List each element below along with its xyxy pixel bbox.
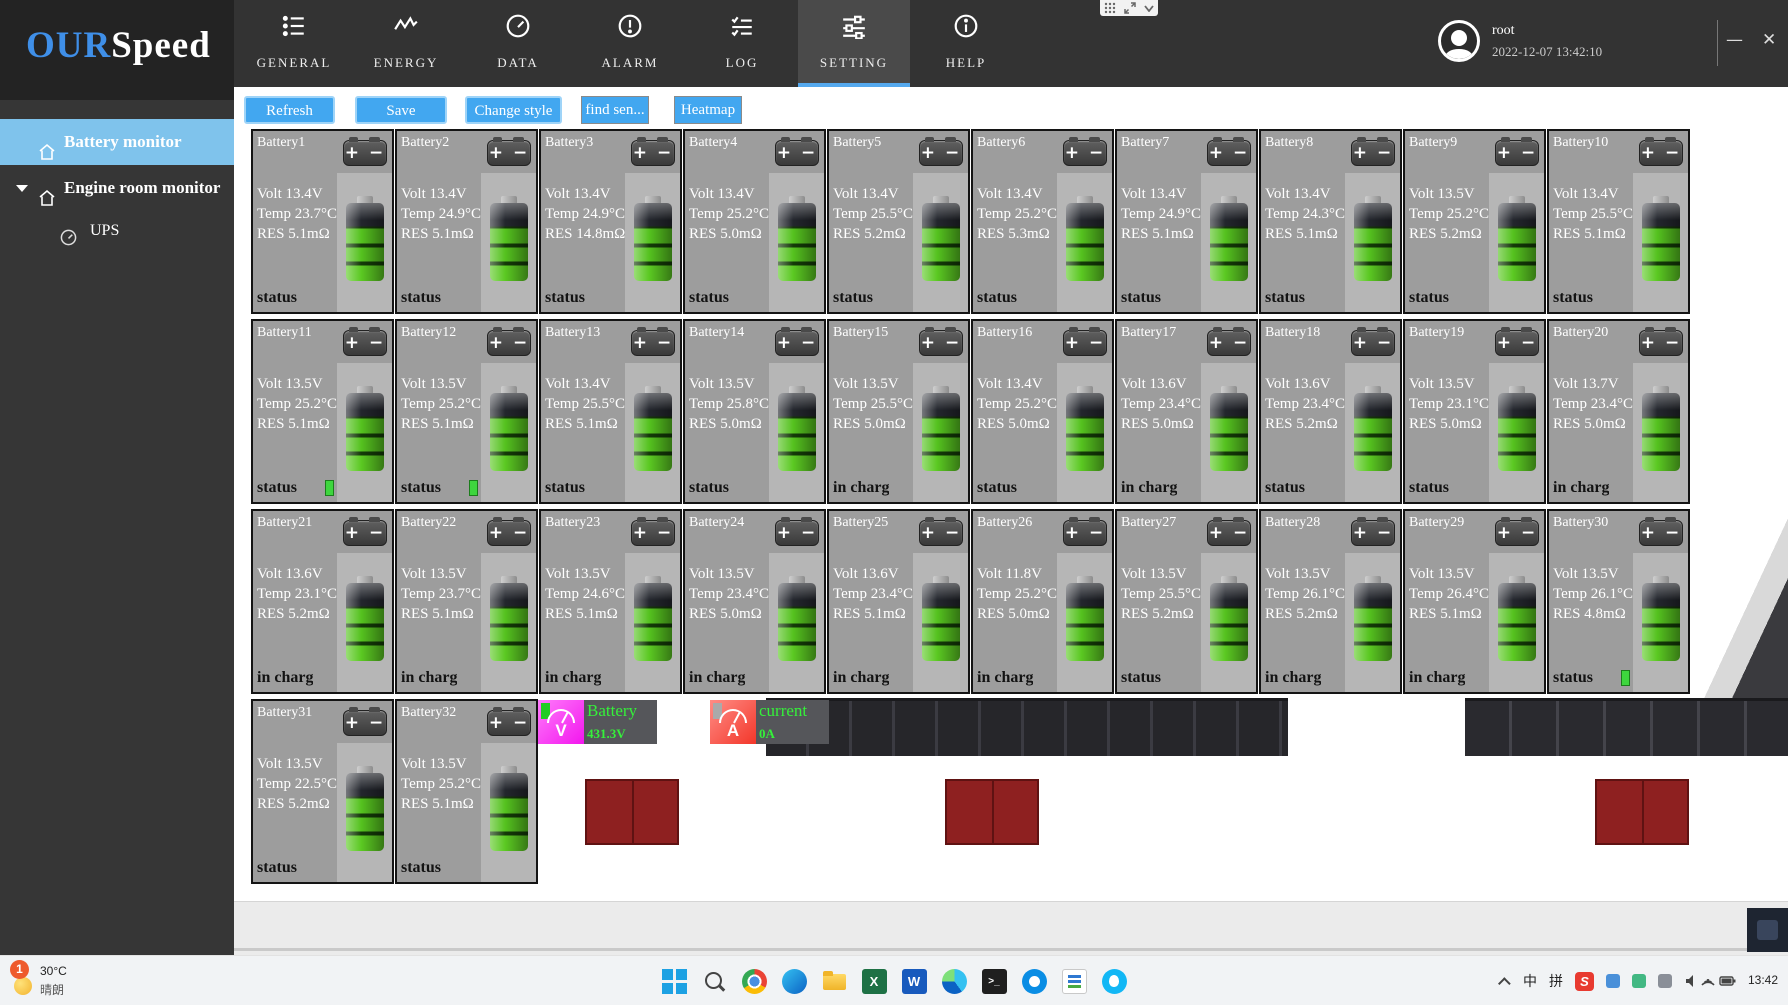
battery-card[interactable]: Battery31 Volt 13.5V Temp 22.5°C RES 5.2… (251, 699, 394, 884)
battery-card[interactable]: Battery28 Volt 13.5V Temp 26.1°C RES 5.2… (1259, 509, 1402, 694)
browser-icon[interactable] (942, 969, 967, 994)
system-tray: 中 拼 S 13:42 (1502, 956, 1778, 1006)
battery-status: status (257, 859, 297, 877)
sidebar-item-ups[interactable]: UPS (0, 211, 234, 251)
battery-name: Battery15 (833, 325, 888, 341)
battery-status: in charg (401, 669, 457, 687)
battery-card[interactable]: Battery17 Volt 13.6V Temp 23.4°C RES 5.0… (1115, 319, 1258, 504)
terminal-icon[interactable]: >_ (982, 969, 1007, 994)
battery-volt: Volt 13.5V (1409, 564, 1489, 584)
battery-level-icon (1066, 393, 1104, 471)
battery-level-icon (1498, 393, 1536, 471)
battery-status: in charg (1265, 669, 1321, 687)
battery-volt: Volt 13.4V (257, 184, 337, 204)
battery-temp: Temp 23.4°C (1121, 394, 1201, 414)
messenger-icon[interactable] (1102, 969, 1127, 994)
battery-volt: Volt 13.4V (1553, 184, 1633, 204)
heatmap-field[interactable]: Heatmap (674, 96, 742, 124)
battery-name: Battery32 (401, 705, 456, 721)
folder-icon[interactable] (822, 969, 847, 994)
ammeter-icon: A (710, 700, 756, 744)
car-battery-icon (1639, 140, 1683, 166)
battery-temp: Temp 23.1°C (1409, 394, 1489, 414)
battery-values: Volt 13.5V Temp 25.2°C RES 5.2mΩ (1409, 184, 1489, 244)
sidebar-item-label: Engine room monitor (64, 178, 220, 197)
tab-general[interactable]: GENERAL (238, 0, 350, 87)
battery-volt: Volt 13.4V (689, 184, 769, 204)
battery-level-column (1633, 553, 1688, 692)
battery-volt: Volt 13.5V (257, 754, 337, 774)
battery-temp: Temp 24.9°C (1121, 204, 1201, 224)
battery-temp: Temp 25.2°C (977, 204, 1057, 224)
battery-values: Volt 11.8V Temp 25.2°C RES 5.0mΩ (977, 564, 1057, 624)
battery-name: Battery3 (545, 135, 593, 151)
meter-label: Battery (587, 701, 637, 721)
tab-label: LOG (686, 55, 798, 71)
tab-label: GENERAL (238, 55, 350, 71)
battery-values: Volt 13.4V Temp 24.3°C RES 5.1mΩ (1265, 184, 1345, 244)
ime-mode[interactable]: 拼 (1549, 971, 1563, 991)
battery-card[interactable]: Battery16 Volt 13.4V Temp 25.2°C RES 5.0… (971, 319, 1114, 504)
docs-icon[interactable] (1062, 969, 1087, 994)
battery-res: RES 5.1mΩ (1265, 224, 1345, 244)
battery-card[interactable]: Battery13 Volt 13.4V Temp 25.5°C RES 5.1… (539, 319, 682, 504)
battery-values: Volt 13.5V Temp 24.6°C RES 5.1mΩ (545, 564, 625, 624)
meter-letter: V (538, 721, 584, 741)
battery-volt: Volt 13.4V (1265, 184, 1345, 204)
battery-temp: Temp 24.9°C (401, 204, 481, 224)
battery-card[interactable]: Battery19 Volt 13.5V Temp 23.1°C RES 5.0… (1403, 319, 1546, 504)
battery-res: RES 5.1mΩ (1553, 224, 1633, 244)
battery-card[interactable]: Battery11 Volt 13.5V Temp 25.2°C RES 5.1… (251, 319, 394, 504)
car-battery-icon (1495, 140, 1539, 166)
battery-temp: Temp 25.5°C (833, 204, 913, 224)
battery-level-icon (1642, 583, 1680, 661)
battery-card[interactable]: Battery1 Volt 13.4V Temp 23.7°C RES 5.1m… (251, 129, 394, 314)
battery-temp: Temp 25.2°C (401, 394, 481, 414)
sidebar-item-label: Battery monitor (64, 132, 182, 151)
battery-temp: Temp 25.5°C (833, 394, 913, 414)
battery-name: Battery31 (257, 705, 312, 721)
battery-card[interactable]: Battery18 Volt 13.6V Temp 23.4°C RES 5.2… (1259, 319, 1402, 504)
battery-level-icon (1354, 393, 1392, 471)
battery-volt: Volt 13.5V (1265, 564, 1345, 584)
battery-card[interactable]: Battery6 Volt 13.4V Temp 25.2°C RES 5.3m… (971, 129, 1114, 314)
battery-level-column (337, 743, 392, 882)
battery-temp: Temp 23.4°C (1265, 394, 1345, 414)
battery-card[interactable]: Battery2 Volt 13.4V Temp 24.9°C RES 5.1m… (395, 129, 538, 314)
battery-card[interactable]: Battery27 Volt 13.5V Temp 25.5°C RES 5.2… (1115, 509, 1258, 694)
tray-app-icon[interactable] (1658, 974, 1672, 988)
chrome-icon[interactable] (742, 969, 767, 994)
battery-name: Battery12 (401, 325, 456, 341)
find-sensor-field[interactable]: find sen... (581, 96, 649, 124)
battery-res: RES 5.1mΩ (257, 224, 337, 244)
battery-status: status (1553, 669, 1593, 687)
start-icon[interactable] (662, 969, 687, 994)
battery-status: status (545, 289, 585, 307)
battery-status: status (1265, 479, 1305, 497)
battery-temp: Temp 25.2°C (257, 394, 337, 414)
tab-log[interactable]: LOG (686, 0, 798, 87)
search-icon[interactable] (702, 969, 727, 994)
battery-level-column (625, 553, 680, 692)
battery-res: RES 5.2mΩ (833, 224, 913, 244)
battery-status: status (401, 859, 441, 877)
car-battery-icon (775, 330, 819, 356)
battery-card[interactable]: Battery8 Volt 13.4V Temp 24.3°C RES 5.1m… (1259, 129, 1402, 314)
battery-res: RES 5.2mΩ (1265, 414, 1345, 434)
wall-wedge (1689, 511, 1788, 698)
tab-label: ALARM (574, 55, 686, 71)
refresh-button[interactable]: Refresh (244, 96, 335, 124)
car-battery-icon (1639, 520, 1683, 546)
battery-name: Battery16 (977, 325, 1032, 341)
battery-status: in charg (257, 669, 313, 687)
change-style-button[interactable]: Change style (465, 96, 562, 124)
battery-card[interactable]: Battery29 Volt 13.5V Temp 26.4°C RES 5.1… (1403, 509, 1546, 694)
app-header: GENERAL ENERGY DATA ALARM (0, 0, 1788, 87)
battery-values: Volt 13.5V Temp 25.2°C RES 5.1mΩ (401, 374, 481, 434)
battery-volt: Volt 13.5V (1553, 564, 1633, 584)
car-battery-icon (1063, 330, 1107, 356)
battery-res: RES 5.0mΩ (1553, 414, 1633, 434)
car-battery-icon (775, 140, 819, 166)
battery-name: Battery18 (1265, 325, 1320, 341)
tab-label: ENERGY (350, 55, 462, 71)
battery-res: RES 5.2mΩ (1121, 604, 1201, 624)
battery-name: Battery22 (401, 515, 456, 531)
battery-values: Volt 13.4V Temp 25.5°C RES 5.1mΩ (545, 374, 625, 434)
battery-volt: Volt 13.4V (833, 184, 913, 204)
battery-level-column (481, 553, 536, 692)
battery-temp: Temp 24.9°C (545, 204, 625, 224)
battery-values: Volt 13.5V Temp 23.7°C RES 5.1mΩ (401, 564, 481, 624)
battery-temp: Temp 24.3°C (1265, 204, 1345, 224)
battery-res: RES 5.1mΩ (257, 414, 337, 434)
battery-res: RES 5.0mΩ (689, 224, 769, 244)
battery-volt: Volt 13.4V (545, 374, 625, 394)
excel-icon[interactable]: X (862, 969, 887, 994)
battery-card[interactable]: Battery25 Volt 13.6V Temp 23.4°C RES 5.1… (827, 509, 970, 694)
battery-card[interactable]: Battery20 Volt 13.7V Temp 23.4°C RES 5.0… (1547, 319, 1690, 504)
minimize-button[interactable]: — (1726, 30, 1743, 50)
save-button[interactable]: Save (355, 96, 447, 124)
battery-volt: Volt 13.5V (257, 374, 337, 394)
battery-temp: Temp 25.2°C (977, 394, 1057, 414)
edge-icon[interactable] (782, 969, 807, 994)
battery-card[interactable]: Battery3 Volt 13.4V Temp 24.9°C RES 14.8… (539, 129, 682, 314)
battery-level-icon (1210, 583, 1248, 661)
battery-res: RES 5.0mΩ (1121, 414, 1201, 434)
battery-values: Volt 13.5V Temp 25.2°C RES 5.1mΩ (257, 374, 337, 434)
battery-level-column (1057, 173, 1112, 312)
car-battery-icon (1063, 520, 1107, 546)
sidebar-item-battery-monitor[interactable]: Battery monitor (0, 119, 234, 165)
battery-name: Battery6 (977, 135, 1025, 151)
battery-status: status (689, 479, 729, 497)
battery-level-icon (1066, 583, 1104, 661)
battery-level-column (337, 363, 392, 502)
battery-card[interactable]: Battery22 Volt 13.5V Temp 23.7°C RES 5.1… (395, 509, 538, 694)
battery-volt: Volt 13.5V (401, 754, 481, 774)
battery-card[interactable]: Battery14 Volt 13.5V Temp 25.8°C RES 5.0… (683, 319, 826, 504)
scene-nav-cube[interactable] (1747, 908, 1788, 952)
battery-temp: Temp 24.6°C (545, 584, 625, 604)
car-battery-icon (487, 330, 531, 356)
battery-volt: Volt 13.5V (1121, 564, 1201, 584)
battery-name: Battery1 (257, 135, 305, 151)
avatar[interactable] (1438, 20, 1480, 62)
battery-res: RES 5.0mΩ (1409, 414, 1489, 434)
battery-res: RES 5.2mΩ (1409, 224, 1489, 244)
battery-status: status (545, 479, 585, 497)
battery-status: status (1409, 289, 1449, 307)
battery-card[interactable]: Battery4 Volt 13.4V Temp 25.2°C RES 5.0m… (683, 129, 826, 314)
battery-name: Battery28 (1265, 515, 1320, 531)
battery-volt: Volt 13.4V (977, 184, 1057, 204)
sliders-icon (841, 13, 867, 39)
battery-temp: Temp 23.1°C (257, 584, 337, 604)
main-nav: GENERAL ENERGY DATA ALARM (238, 0, 1022, 87)
battery-name: Battery26 (977, 515, 1032, 531)
battery-volt: Volt 13.5V (401, 374, 481, 394)
battery-level-icon (1354, 583, 1392, 661)
battery-card[interactable]: Battery10 Volt 13.4V Temp 25.5°C RES 5.1… (1547, 129, 1690, 314)
battery-temp: Temp 23.4°C (689, 584, 769, 604)
battery-level-icon (1354, 203, 1392, 281)
battery-level-icon (490, 773, 528, 851)
chat-icon[interactable] (1022, 969, 1047, 994)
battery-status: status (257, 289, 297, 307)
meter-overlays: V Battery 431.3V A current 0A (538, 700, 829, 744)
sidebar-item-engine-room-monitor[interactable]: Engine room monitor (0, 165, 234, 211)
battery-card[interactable]: Battery7 Volt 13.4V Temp 24.9°C RES 5.1m… (1115, 129, 1258, 314)
battery-temp: Temp 23.7°C (257, 204, 337, 224)
battery-volt: Volt 13.6V (257, 564, 337, 584)
tab-label: SETTING (798, 55, 910, 71)
tray-app-icon[interactable] (1632, 974, 1646, 988)
battery-level-icon (778, 583, 816, 661)
current-meter[interactable]: A current 0A (710, 700, 829, 744)
username: root (1492, 23, 1602, 39)
charge-indicator (469, 480, 478, 496)
battery-values: Volt 13.6V Temp 23.4°C RES 5.0mΩ (1121, 374, 1201, 434)
battery-level-icon (922, 203, 960, 281)
tray-app-icon[interactable] (1606, 974, 1620, 988)
network-volume-battery-cluster[interactable] (1684, 973, 1736, 989)
battery-status: status (1553, 289, 1593, 307)
battery-level-icon (922, 583, 960, 661)
car-battery-icon (919, 140, 963, 166)
battery-level-icon (1642, 203, 1680, 281)
datetime: 2022-12-07 13:42:10 (1492, 44, 1602, 60)
battery-res: RES 5.1mΩ (401, 414, 481, 434)
battery-level-column (337, 553, 392, 692)
battery-res: RES 5.1mΩ (545, 604, 625, 624)
battery-values: Volt 13.5V Temp 25.5°C RES 5.0mΩ (833, 374, 913, 434)
battery-values: Volt 13.5V Temp 23.4°C RES 5.0mΩ (689, 564, 769, 624)
battery-values: Volt 13.4V Temp 25.5°C RES 5.1mΩ (1553, 184, 1633, 244)
battery-status: status (977, 479, 1017, 497)
word-icon[interactable]: W (902, 969, 927, 994)
battery-volt: Volt 13.5V (1409, 184, 1489, 204)
floor-strip (234, 901, 1788, 955)
tab-data[interactable]: DATA (462, 0, 574, 87)
battery-card[interactable]: Battery5 Volt 13.4V Temp 25.5°C RES 5.2m… (827, 129, 970, 314)
battery-status: status (977, 289, 1017, 307)
battery-res: RES 4.8mΩ (1553, 604, 1633, 624)
ime-language[interactable]: 中 (1523, 971, 1537, 991)
battery-card[interactable]: Battery15 Volt 13.5V Temp 25.5°C RES 5.0… (827, 319, 970, 504)
sidebar: Battery monitor Engine room monitor UPS (0, 87, 234, 955)
battery-status: status (401, 289, 441, 307)
battery-temp: Temp 25.2°C (401, 774, 481, 794)
battery-volt: Volt 13.5V (545, 564, 625, 584)
car-battery-icon (1351, 140, 1395, 166)
battery-name: Battery9 (1409, 135, 1457, 151)
battery-level-icon (1066, 203, 1104, 281)
car-battery-icon (1495, 330, 1539, 356)
battery-level-icon (1210, 393, 1248, 471)
car-battery-icon (631, 330, 675, 356)
battery-level-icon (1642, 393, 1680, 471)
logo-part1: OUR (26, 25, 111, 66)
battery-values: Volt 13.5V Temp 25.2°C RES 5.1mΩ (401, 754, 481, 814)
battery-level-column (1345, 553, 1400, 692)
battery-name: Battery23 (545, 515, 600, 531)
battery-values: Volt 13.4V Temp 24.9°C RES 5.1mΩ (401, 184, 481, 244)
battery-name: Battery30 (1553, 515, 1608, 531)
car-battery-icon (775, 520, 819, 546)
battery-card[interactable]: Battery24 Volt 13.5V Temp 23.4°C RES 5.0… (683, 509, 826, 694)
battery-status: status (689, 289, 729, 307)
clock[interactable]: 13:42 (1748, 973, 1778, 989)
battery-res: RES 5.1mΩ (833, 604, 913, 624)
battery-level-column (913, 553, 968, 692)
battery-name: Battery13 (545, 325, 600, 341)
battery-res: RES 5.1mΩ (401, 794, 481, 814)
grid-icon (1104, 2, 1116, 14)
battery-level-column (625, 173, 680, 312)
car-battery-icon (631, 520, 675, 546)
battery-res: RES 5.0mΩ (977, 414, 1057, 434)
battery-level-column (1057, 363, 1112, 502)
car-battery-icon (1495, 520, 1539, 546)
battery-res: RES 5.2mΩ (257, 794, 337, 814)
battery-res: RES 5.3mΩ (977, 224, 1057, 244)
battery-volt: Volt 13.5V (689, 374, 769, 394)
battery-level-icon (778, 203, 816, 281)
battery-temp: Temp 22.5°C (257, 774, 337, 794)
battery-values: Volt 13.4V Temp 25.2°C RES 5.3mΩ (977, 184, 1057, 244)
battery-card[interactable]: Battery23 Volt 13.5V Temp 24.6°C RES 5.1… (539, 509, 682, 694)
battery-level-column (481, 173, 536, 312)
car-battery-icon (343, 710, 387, 736)
battery-grid: Battery1 Volt 13.4V Temp 23.7°C RES 5.1m… (251, 129, 1690, 884)
battery-level-icon (346, 393, 384, 471)
battery-values: Volt 13.4V Temp 23.7°C RES 5.1mΩ (257, 184, 337, 244)
battery-card[interactable]: Battery21 Volt 13.6V Temp 23.1°C RES 5.2… (251, 509, 394, 694)
battery-level-column (1345, 363, 1400, 502)
tab-help[interactable]: HELP (910, 0, 1022, 87)
charge-indicator (1621, 670, 1630, 686)
battery-level-column (1201, 173, 1256, 312)
car-battery-icon (343, 140, 387, 166)
tab-setting[interactable]: SETTING (798, 0, 910, 87)
notification-badge: 1 (10, 960, 29, 979)
battery-status: status (1409, 479, 1449, 497)
battery-temp: Temp 25.5°C (1553, 204, 1633, 224)
battery-name: Battery11 (257, 325, 312, 341)
battery-values: Volt 13.6V Temp 23.4°C RES 5.2mΩ (1265, 374, 1345, 434)
battery-volt: Volt 13.4V (1121, 184, 1201, 204)
tab-alarm[interactable]: ALARM (574, 0, 686, 87)
battery-status: in charg (833, 479, 889, 497)
battery-name: Battery10 (1553, 135, 1608, 151)
car-battery-icon (1063, 140, 1107, 166)
car-battery-icon (343, 520, 387, 546)
battery-values: Volt 13.7V Temp 23.4°C RES 5.0mΩ (1553, 374, 1633, 434)
battery-name: Battery2 (401, 135, 449, 151)
battery-card[interactable]: Battery12 Volt 13.5V Temp 25.2°C RES 5.1… (395, 319, 538, 504)
battery-level-icon (490, 583, 528, 661)
battery-card[interactable]: Battery32 Volt 13.5V Temp 25.2°C RES 5.1… (395, 699, 538, 884)
battery-temp: Temp 23.7°C (401, 584, 481, 604)
battery-level-icon (634, 203, 672, 281)
battery-values: Volt 13.5V Temp 22.5°C RES 5.2mΩ (257, 754, 337, 814)
battery-level-column (769, 173, 824, 312)
battery-status: status (833, 289, 873, 307)
battery-name: Battery4 (689, 135, 737, 151)
battery-level-column (1345, 173, 1400, 312)
charge-indicator (325, 480, 334, 496)
battery-name: Battery20 (1553, 325, 1608, 341)
battery-res: RES 5.2mΩ (257, 604, 337, 624)
battery-temp: Temp 25.2°C (689, 204, 769, 224)
battery-volt: Volt 13.5V (1409, 374, 1489, 394)
close-button[interactable]: ✕ (1762, 30, 1776, 50)
battery-level-icon (490, 393, 528, 471)
battery-level-icon (1210, 203, 1248, 281)
screen-capture-widget[interactable] (1100, 0, 1158, 16)
battery-card[interactable]: Battery26 Volt 11.8V Temp 25.2°C RES 5.0… (971, 509, 1114, 694)
car-battery-icon (1639, 330, 1683, 356)
car-battery-icon (487, 520, 531, 546)
battery-level-icon (346, 203, 384, 281)
battery-values: Volt 13.5V Temp 26.1°C RES 5.2mΩ (1265, 564, 1345, 624)
tab-energy[interactable]: ENERGY (350, 0, 462, 87)
battery-card[interactable]: Battery9 Volt 13.5V Temp 25.2°C RES 5.2m… (1403, 129, 1546, 314)
voltage-meter[interactable]: V Battery 431.3V (538, 700, 657, 744)
battery-values: Volt 13.4V Temp 24.9°C RES 14.8mΩ (545, 184, 625, 244)
battery-level-column (1489, 553, 1544, 692)
battery-res: RES 5.0mΩ (689, 604, 769, 624)
battery-level-icon (922, 393, 960, 471)
battery-status: in charg (1409, 669, 1465, 687)
battery-status: status (1121, 289, 1161, 307)
battery-values: Volt 13.5V Temp 26.4°C RES 5.1mΩ (1409, 564, 1489, 624)
battery-res: RES 5.1mΩ (401, 604, 481, 624)
info-icon (953, 13, 979, 39)
battery-temp: Temp 25.2°C (1409, 204, 1489, 224)
sidebar-item-label: UPS (90, 222, 119, 239)
battery-temp: Temp 26.4°C (1409, 584, 1489, 604)
expand-triangle-icon[interactable] (16, 185, 28, 192)
sogou-icon[interactable]: S (1575, 972, 1594, 991)
battery-card[interactable]: Battery30 Volt 13.5V Temp 26.1°C RES 4.8… (1547, 509, 1690, 694)
battery-status: in charg (833, 669, 889, 687)
